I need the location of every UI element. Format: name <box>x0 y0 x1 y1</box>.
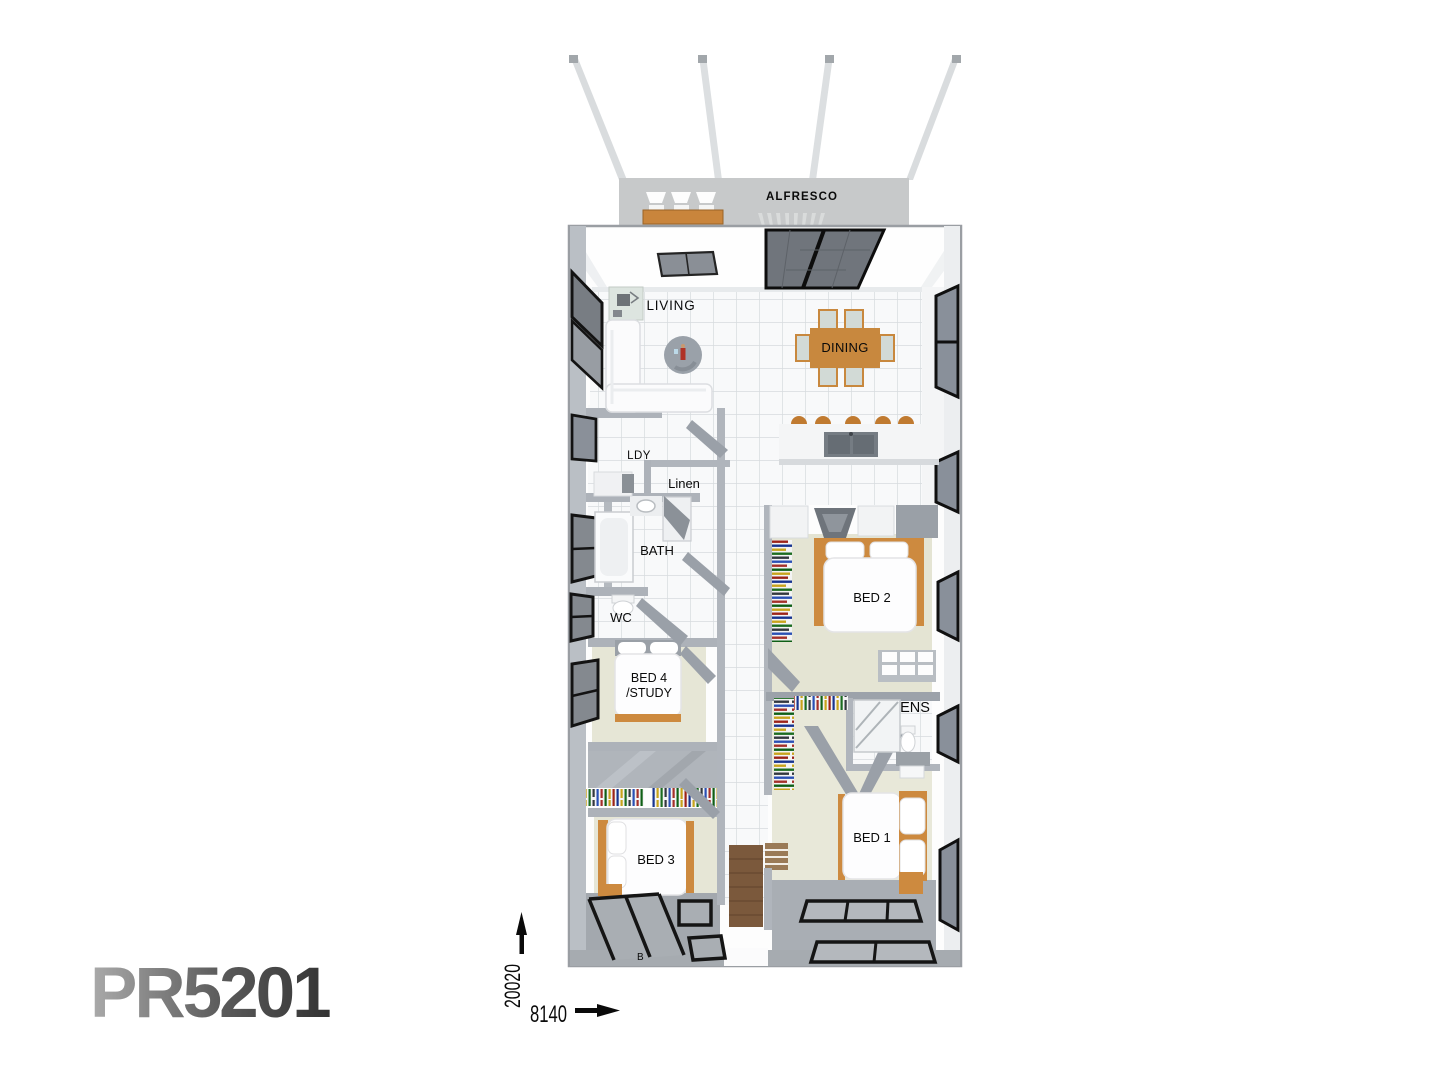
svg-text:8140: 8140 <box>530 1001 567 1028</box>
svg-text:BATH: BATH <box>640 543 674 558</box>
svg-text:BED 3: BED 3 <box>637 852 675 867</box>
svg-text:LDY: LDY <box>627 450 651 462</box>
svg-text:BED 1: BED 1 <box>853 830 891 845</box>
svg-text:BED 4: BED 4 <box>631 671 667 685</box>
svg-text:WC: WC <box>610 610 632 625</box>
svg-text:BED 2: BED 2 <box>853 590 891 605</box>
svg-text:PR5201: PR5201 <box>90 954 330 1033</box>
svg-text:DINING: DINING <box>821 340 868 355</box>
svg-text:ALFRESCO: ALFRESCO <box>766 191 838 203</box>
svg-text:ENS: ENS <box>900 700 930 716</box>
svg-text:20020: 20020 <box>500 964 525 1008</box>
svg-text:B: B <box>637 952 644 963</box>
svg-text:LIVING: LIVING <box>646 298 695 313</box>
svg-text:Linen: Linen <box>668 476 700 491</box>
svg-text:/STUDY: /STUDY <box>626 686 673 700</box>
